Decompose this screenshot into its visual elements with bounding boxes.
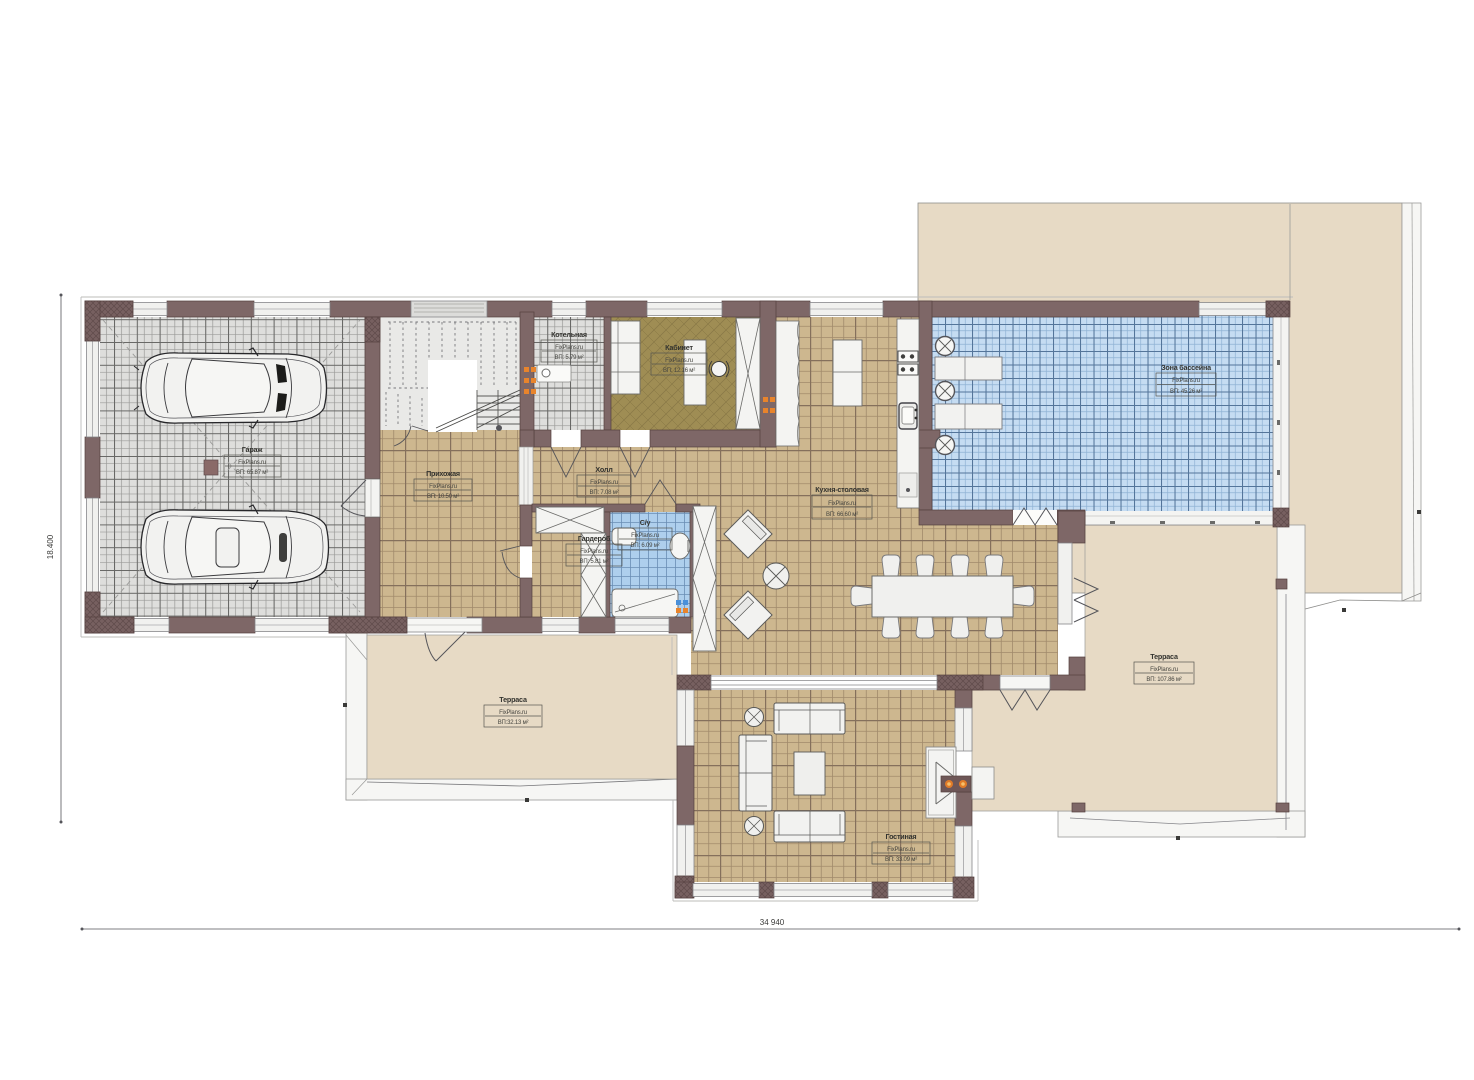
svg-text:18.400: 18.400	[46, 534, 55, 559]
svg-text:FixPlans.ru: FixPlans.ru	[665, 358, 693, 364]
svg-text:Терраса: Терраса	[1150, 652, 1179, 661]
svg-text:FixPlans.ru: FixPlans.ru	[238, 460, 266, 466]
svg-text:34 940: 34 940	[760, 918, 785, 927]
svg-text:Прихожая: Прихожая	[426, 469, 460, 478]
svg-text:Котельная: Котельная	[551, 330, 587, 339]
svg-text:FixPlans.ru: FixPlans.ru	[580, 549, 608, 555]
svg-text:С/у: С/у	[640, 518, 651, 527]
svg-text:Гараж: Гараж	[242, 445, 264, 454]
svg-text:ВП: 12.16 м²: ВП: 12.16 м²	[663, 368, 695, 374]
svg-text:FixPlans.ru: FixPlans.ru	[828, 501, 856, 507]
svg-text:FixPlans.ru: FixPlans.ru	[429, 484, 457, 490]
svg-text:Гостиная: Гостиная	[886, 832, 917, 841]
svg-text:FixPlans.ru: FixPlans.ru	[590, 480, 618, 486]
svg-text:Холл: Холл	[595, 465, 613, 474]
svg-text:Зона бассейна: Зона бассейна	[1161, 363, 1212, 372]
svg-text:ВП: 45.26 м²: ВП: 45.26 м²	[1170, 389, 1202, 395]
svg-text:ВП: 10.50 м²: ВП: 10.50 м²	[427, 494, 459, 500]
svg-text:ВП: 65.87 м²: ВП: 65.87 м²	[236, 470, 268, 476]
svg-text:Кухня-столовая: Кухня-столовая	[815, 485, 869, 494]
svg-text:FixPlans.ru: FixPlans.ru	[1150, 667, 1178, 673]
svg-text:ВП: 107.86 м²: ВП: 107.86 м²	[1146, 677, 1181, 683]
svg-text:ВП: 66.60 м²: ВП: 66.60 м²	[826, 512, 858, 518]
svg-text:FixPlans.ru: FixPlans.ru	[887, 847, 915, 853]
svg-text:FixPlans.ru: FixPlans.ru	[555, 345, 583, 351]
svg-text:ВП:32.13 м²: ВП:32.13 м²	[498, 720, 529, 726]
svg-text:FixPlans.ru: FixPlans.ru	[499, 710, 527, 716]
svg-text:ВП: 7.08 м²: ВП: 7.08 м²	[590, 490, 619, 496]
svg-text:ВП: 5.81 м²: ВП: 5.81 м²	[580, 559, 609, 565]
svg-text:Терраса: Терраса	[499, 695, 528, 704]
svg-text:ВП: 5.79 м²: ВП: 5.79 м²	[555, 355, 584, 361]
svg-text:Гардероб: Гардероб	[578, 534, 611, 543]
svg-text:ВП: 33.09 м²: ВП: 33.09 м²	[885, 857, 917, 863]
svg-text:ВП: 6.09 м²: ВП: 6.09 м²	[631, 543, 660, 549]
svg-text:FixPlans.ru: FixPlans.ru	[1172, 378, 1200, 384]
svg-text:Кабинет: Кабинет	[665, 343, 693, 352]
svg-text:FixPlans.ru: FixPlans.ru	[631, 533, 659, 539]
